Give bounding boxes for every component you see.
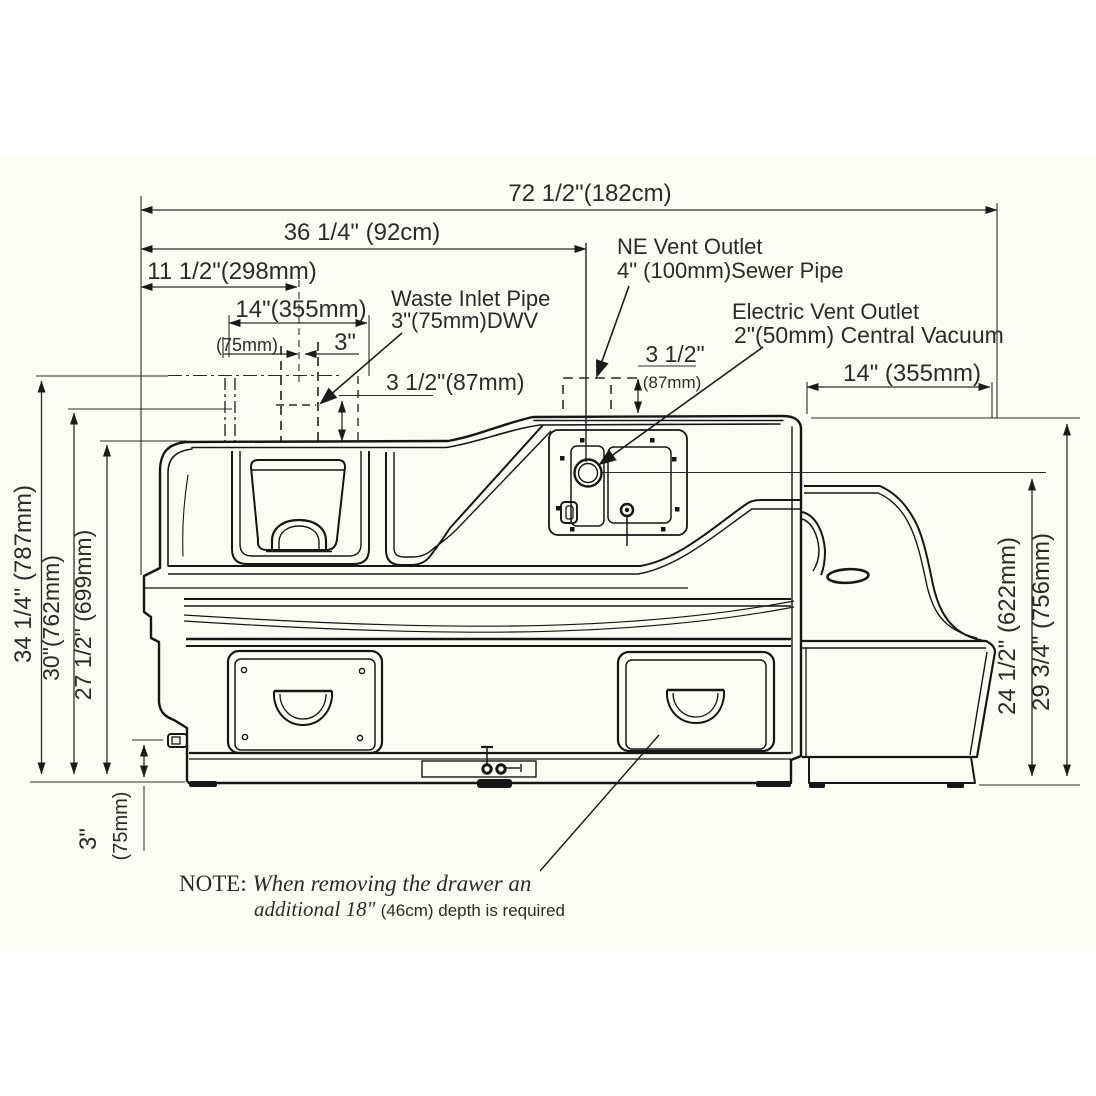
svg-text:14"(355mm): 14"(355mm)	[235, 296, 366, 323]
svg-text:NE Vent Outlet: NE Vent Outlet	[617, 234, 763, 259]
svg-text:36 1/4" (92cm): 36 1/4" (92cm)	[284, 219, 441, 246]
svg-text:NOTE: When removing the drawer: NOTE: When removing the drawer an	[179, 871, 531, 896]
svg-text:30"(762mm): 30"(762mm)	[38, 555, 64, 681]
svg-text:3": 3"	[334, 329, 356, 356]
svg-text:3 1/2": 3 1/2"	[645, 341, 704, 367]
svg-text:72 1/2"(182cm): 72 1/2"(182cm)	[508, 180, 671, 207]
svg-text:14" (355mm): 14" (355mm)	[843, 360, 981, 387]
svg-text:additional 18" (46cm) depth is: additional 18" (46cm) depth is required	[254, 897, 565, 921]
svg-text:(87mm): (87mm)	[643, 373, 702, 392]
svg-text:3": 3"	[75, 828, 102, 850]
svg-text:3"(75mm)DWV: 3"(75mm)DWV	[391, 308, 538, 333]
svg-text:3 1/2"(87mm): 3 1/2"(87mm)	[386, 369, 525, 395]
svg-text:Electric Vent Outlet: Electric Vent Outlet	[732, 299, 919, 324]
svg-text:11 1/2"(298mm): 11 1/2"(298mm)	[147, 258, 316, 285]
svg-text:34 1/4" (787mm): 34 1/4" (787mm)	[10, 485, 37, 663]
svg-text:(75mm): (75mm)	[216, 335, 278, 355]
svg-text:24 1/2" (622mm): 24 1/2" (622mm)	[994, 537, 1021, 715]
svg-text:4" (100mm)Sewer Pipe: 4" (100mm)Sewer Pipe	[617, 258, 844, 283]
svg-text:(75mm): (75mm)	[110, 792, 132, 861]
svg-text:27 1/2" (699mm): 27 1/2" (699mm)	[70, 530, 96, 701]
svg-text:2"(50mm) Central Vacuum: 2"(50mm) Central Vacuum	[734, 322, 1004, 348]
svg-text:29 3/4" (756mm): 29 3/4" (756mm)	[1028, 533, 1055, 711]
